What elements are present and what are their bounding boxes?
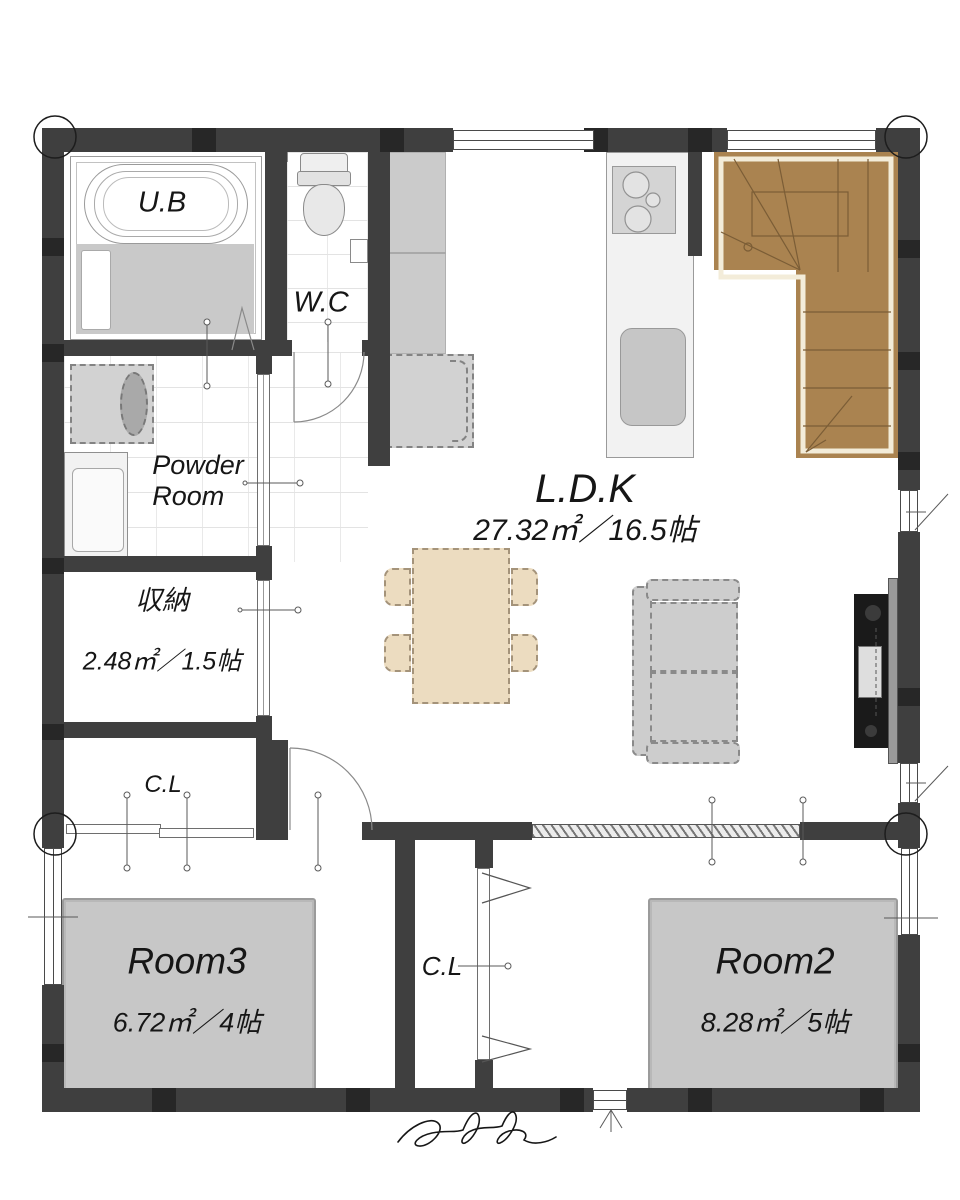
wall-pier xyxy=(898,240,920,258)
wall-pier xyxy=(898,688,920,706)
wall-pier xyxy=(688,128,712,152)
window xyxy=(453,130,594,150)
sofa-cushion xyxy=(650,602,738,672)
closet-sliding-door xyxy=(66,824,161,834)
closet-folding-door xyxy=(477,868,490,1060)
wall-pier xyxy=(898,452,920,470)
storage-label: 収納 xyxy=(135,585,189,616)
ub-label: U.B xyxy=(138,186,186,219)
window xyxy=(900,490,918,532)
cooktop xyxy=(612,166,676,234)
wc-label: W.C xyxy=(293,286,348,319)
wall-kitchen-partition xyxy=(688,152,702,256)
wall-corridor-east xyxy=(368,150,390,466)
closet-hall-label: C.L xyxy=(144,771,181,799)
washing-machine-drum xyxy=(120,372,148,436)
wall-right xyxy=(898,803,920,848)
sofa-armrest xyxy=(646,579,740,601)
wall-pier xyxy=(346,1088,370,1112)
window xyxy=(901,848,918,935)
wall-middle xyxy=(800,822,898,840)
wall-pier xyxy=(560,1088,584,1112)
wall-storage-cl xyxy=(64,722,256,738)
powder-sliding-door xyxy=(257,374,270,546)
wall-pier xyxy=(42,558,64,574)
dining-table xyxy=(412,548,510,704)
room3-label: Room3 xyxy=(127,941,246,984)
sofa-cushion xyxy=(650,672,738,742)
tv-console xyxy=(858,646,882,698)
wall-pier xyxy=(898,352,920,370)
powder-room-label: Powder Room xyxy=(152,450,244,512)
tv-screen xyxy=(888,578,898,764)
bath-mat xyxy=(81,250,111,330)
closet-center-label: C.L xyxy=(422,952,462,982)
vanity-sink xyxy=(72,468,124,552)
dining-chair xyxy=(384,634,411,672)
wall-ub-wc xyxy=(265,150,287,346)
wall-middle xyxy=(362,822,532,840)
room2-area: 8.28㎡／5帖 xyxy=(701,1007,850,1038)
dining-chair xyxy=(511,568,538,606)
wall-powder-east xyxy=(256,716,272,740)
dining-chair xyxy=(511,634,538,672)
window xyxy=(900,763,918,803)
wall-pier xyxy=(192,128,216,152)
ldk-label: L.D.K xyxy=(535,466,635,512)
storage-sliding-door xyxy=(257,580,270,716)
wall-left xyxy=(42,128,64,848)
closet-sliding-door xyxy=(159,828,254,838)
wall-bottom xyxy=(42,1088,593,1112)
staircase-upper-run xyxy=(714,152,898,270)
sofa-armrest xyxy=(646,742,740,764)
dining-chair xyxy=(384,568,411,606)
wall-pier xyxy=(152,1088,176,1112)
staircase-right-run xyxy=(796,270,898,458)
window xyxy=(727,130,876,150)
wall-pier xyxy=(42,344,64,362)
room3-area: 6.72㎡／4帖 xyxy=(113,1007,262,1038)
wc-corner-shelf xyxy=(350,239,368,263)
wall-pier xyxy=(688,1088,712,1112)
floor-plan: U.B W.C Powder Room 収納 2.48㎡／1.5帖 C.L L.… xyxy=(0,0,960,1200)
refrigerator-door xyxy=(450,360,468,442)
kitchen-sink xyxy=(620,328,686,426)
room2-label: Room2 xyxy=(715,941,834,984)
wall-pier xyxy=(42,238,64,256)
wall-cl-room2 xyxy=(475,840,493,868)
wall-cl-room2 xyxy=(475,1060,493,1088)
wall-powder-east xyxy=(256,352,272,374)
room2-sliding-partition xyxy=(532,824,800,838)
sofa-backrest xyxy=(632,586,652,756)
window xyxy=(44,848,62,985)
room3-mat xyxy=(62,898,316,1094)
tall-cabinet-divider xyxy=(388,252,446,254)
wall-pier xyxy=(380,128,404,152)
storage-area: 2.48㎡／1.5帖 xyxy=(83,648,241,677)
wall-right xyxy=(898,532,920,763)
wall-powder-east xyxy=(256,546,272,580)
wall-pier xyxy=(898,1044,920,1062)
toilet-bowl xyxy=(303,184,345,236)
wall-pier xyxy=(860,1088,884,1112)
wall-pier xyxy=(42,1044,64,1062)
ldk-area: 27.32㎡／16.5帖 xyxy=(473,514,696,549)
window xyxy=(593,1090,627,1110)
room2-mat xyxy=(648,898,898,1092)
room3-door-arc xyxy=(290,748,372,830)
wall-cl-east xyxy=(256,740,288,840)
brand-signature xyxy=(398,1112,556,1146)
wall-right xyxy=(898,935,920,1088)
wall-room3-cl xyxy=(395,840,415,1088)
wall-right xyxy=(898,128,920,490)
wall-pier xyxy=(42,724,64,740)
wall-powder-storage xyxy=(64,556,256,572)
